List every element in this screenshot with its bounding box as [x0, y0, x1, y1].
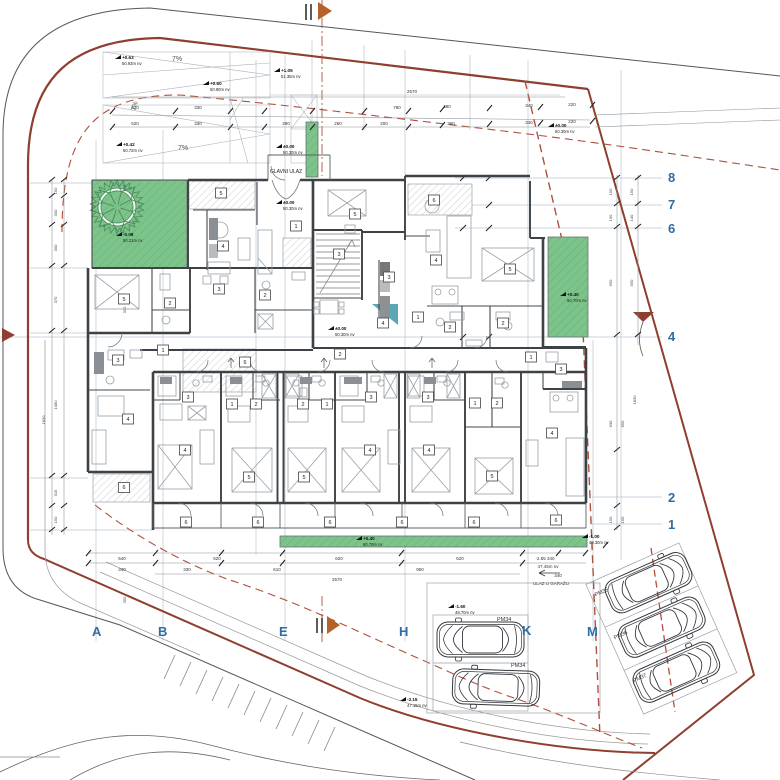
svg-text:650: 650 — [620, 420, 625, 427]
svg-text:50.90m nv: 50.90m nv — [210, 87, 230, 92]
svg-text:630: 630 — [608, 420, 613, 427]
svg-text:370: 370 — [53, 296, 58, 303]
svg-text:1830: 1830 — [632, 395, 637, 405]
svg-text:2570: 2570 — [407, 89, 418, 94]
svg-text:2: 2 — [448, 325, 451, 331]
svg-text:51.35m nv: 51.35m nv — [281, 74, 301, 79]
svg-text:4: 4 — [221, 244, 224, 250]
svg-text:PM34: PM34 — [511, 663, 525, 669]
svg-text:7%: 7% — [178, 145, 188, 152]
svg-text:K: K — [522, 623, 532, 638]
svg-text:360: 360 — [447, 121, 455, 126]
svg-text:6: 6 — [122, 485, 125, 491]
svg-text:50.30m nv: 50.30m nv — [283, 206, 303, 211]
svg-text:550: 550 — [608, 279, 613, 286]
svg-text:330: 330 — [194, 105, 202, 110]
svg-text:340: 340 — [525, 103, 533, 108]
svg-text:150: 150 — [53, 516, 58, 523]
svg-text:5: 5 — [219, 191, 222, 197]
svg-text:1: 1 — [529, 355, 532, 361]
svg-text:7%: 7% — [172, 56, 182, 63]
svg-text:3: 3 — [337, 252, 340, 258]
svg-text:-3.15: -3.15 — [407, 697, 418, 702]
svg-text:-0.08: -0.08 — [123, 232, 134, 237]
svg-text:2: 2 — [263, 293, 266, 299]
svg-text:50.93m nv: 50.93m nv — [122, 61, 142, 66]
svg-text:5: 5 — [122, 297, 125, 303]
svg-text:E: E — [279, 624, 288, 639]
svg-text:300: 300 — [53, 209, 58, 216]
svg-text:150: 150 — [122, 184, 127, 191]
svg-text:7: 7 — [668, 197, 675, 212]
svg-text:4: 4 — [550, 431, 553, 437]
svg-text:380: 380 — [443, 104, 451, 109]
svg-text:620: 620 — [335, 556, 343, 561]
svg-text:3: 3 — [426, 395, 429, 401]
svg-text:50.21m nv: 50.21m nv — [123, 238, 143, 243]
svg-text:4: 4 — [427, 448, 430, 454]
svg-text:2: 2 — [338, 352, 341, 358]
svg-text:50.30m nv: 50.30m nv — [555, 129, 575, 134]
svg-text:6: 6 — [256, 520, 259, 526]
svg-text:3: 3 — [559, 367, 562, 373]
svg-text:6: 6 — [472, 520, 475, 526]
svg-text:140: 140 — [629, 214, 634, 221]
svg-text:530: 530 — [131, 105, 139, 110]
svg-text:2: 2 — [168, 301, 171, 307]
svg-text:2570: 2570 — [332, 577, 343, 582]
svg-text:150: 150 — [53, 187, 58, 194]
svg-text:6: 6 — [243, 360, 246, 366]
svg-text:2: 2 — [668, 490, 675, 505]
svg-text:4: 4 — [381, 321, 384, 327]
svg-text:4: 4 — [434, 258, 437, 264]
svg-text:50.72m nv: 50.72m nv — [123, 148, 143, 153]
svg-text:50.30m nv: 50.30m nv — [335, 332, 355, 337]
svg-text:780: 780 — [393, 105, 401, 110]
svg-text:-1.00: -1.00 — [589, 534, 600, 539]
svg-text:610: 610 — [273, 567, 281, 572]
svg-text:150: 150 — [608, 516, 613, 523]
svg-text:340: 340 — [525, 120, 533, 125]
svg-text:340: 340 — [554, 573, 562, 578]
svg-text:1: 1 — [294, 224, 297, 230]
svg-text:±0.00: ±0.00 — [335, 326, 347, 331]
svg-text:315: 315 — [53, 489, 58, 496]
svg-text:2: 2 — [501, 321, 504, 327]
svg-text:6: 6 — [554, 518, 557, 524]
svg-text:+1.05: +1.05 — [281, 68, 293, 73]
svg-text:330: 330 — [183, 567, 191, 572]
svg-text:220: 220 — [568, 102, 576, 107]
svg-text:4: 4 — [183, 448, 186, 454]
svg-text:290: 290 — [282, 121, 290, 126]
svg-text:-2.85 340: -2.85 340 — [535, 556, 555, 561]
svg-text:620: 620 — [213, 556, 221, 561]
svg-text:2: 2 — [301, 402, 304, 408]
svg-text:300: 300 — [53, 244, 58, 251]
svg-text:3: 3 — [369, 395, 372, 401]
svg-text:150: 150 — [620, 516, 625, 523]
svg-text:±0.00: ±0.00 — [555, 123, 567, 128]
svg-text:150: 150 — [608, 188, 613, 195]
svg-text:6: 6 — [432, 198, 435, 204]
svg-text:8: 8 — [668, 170, 675, 185]
svg-text:3: 3 — [387, 275, 390, 281]
svg-text:130: 130 — [608, 214, 613, 221]
svg-text:1830: 1830 — [41, 415, 46, 425]
svg-text:1: 1 — [473, 401, 476, 407]
svg-text:620: 620 — [456, 556, 464, 561]
svg-text:-1.60: -1.60 — [455, 604, 466, 609]
svg-text:GLAVNI ULAZ: GLAVNI ULAZ — [270, 169, 302, 175]
svg-text:49.30m nv: 49.30m nv — [589, 540, 609, 545]
svg-text:50.30m nv: 50.30m nv — [283, 150, 303, 155]
svg-text:1: 1 — [161, 348, 164, 354]
svg-text:4: 4 — [126, 417, 129, 423]
svg-text:+0.42: +0.42 — [123, 142, 135, 147]
svg-text:M: M — [587, 624, 598, 639]
svg-text:5: 5 — [353, 212, 356, 218]
svg-text:5: 5 — [490, 474, 493, 480]
svg-text:200: 200 — [380, 121, 388, 126]
svg-text:1: 1 — [416, 315, 419, 321]
svg-text:ULAZ U GARAŽU: ULAZ U GARAŽU — [533, 579, 569, 586]
svg-text:520: 520 — [131, 121, 139, 126]
svg-text:2: 2 — [495, 401, 498, 407]
svg-text:+0.40: +0.40 — [363, 536, 375, 541]
svg-text:340: 340 — [118, 567, 126, 572]
svg-text:350: 350 — [122, 596, 127, 603]
svg-text:+0.60: +0.60 — [210, 81, 222, 86]
svg-text:A: A — [92, 624, 102, 639]
svg-text:4: 4 — [668, 329, 676, 344]
svg-text:6: 6 — [400, 520, 403, 526]
svg-text:+0.63: +0.63 — [122, 55, 134, 60]
svg-text:B: B — [158, 624, 167, 639]
svg-text:47.45m nv: 47.45m nv — [537, 564, 559, 569]
svg-text:300: 300 — [122, 306, 127, 313]
svg-text:2: 2 — [254, 402, 257, 408]
svg-text:±0.00: ±0.00 — [283, 144, 295, 149]
svg-text:3: 3 — [217, 287, 220, 293]
svg-text:6: 6 — [668, 221, 675, 236]
svg-text:+0.40: +0.40 — [567, 292, 579, 297]
svg-text:48.70m nv: 48.70m nv — [455, 610, 475, 615]
svg-text:H: H — [399, 624, 408, 639]
svg-text:50.70m nv: 50.70m nv — [363, 542, 383, 547]
svg-text:1080: 1080 — [53, 400, 58, 410]
svg-text:1: 1 — [230, 402, 233, 408]
svg-text:540: 540 — [118, 556, 126, 561]
svg-text:5: 5 — [508, 267, 511, 273]
svg-text:4: 4 — [368, 448, 371, 454]
svg-text:950: 950 — [416, 567, 424, 572]
svg-text:550: 550 — [629, 279, 634, 286]
svg-text:47.15m nv: 47.15m nv — [407, 703, 427, 708]
svg-text:50.70m nv: 50.70m nv — [567, 298, 587, 303]
svg-text:5: 5 — [302, 475, 305, 481]
svg-text:260: 260 — [334, 121, 342, 126]
svg-text:3: 3 — [116, 358, 119, 364]
svg-text:3: 3 — [186, 395, 189, 401]
svg-text:±0.00: ±0.00 — [283, 200, 295, 205]
svg-text:1: 1 — [325, 402, 328, 408]
svg-text:5: 5 — [247, 475, 250, 481]
svg-text:150: 150 — [629, 188, 634, 195]
svg-text:1: 1 — [668, 517, 675, 532]
svg-text:6: 6 — [184, 520, 187, 526]
svg-text:6: 6 — [328, 520, 331, 526]
svg-text:220: 220 — [568, 119, 576, 124]
svg-text:330: 330 — [194, 121, 202, 126]
